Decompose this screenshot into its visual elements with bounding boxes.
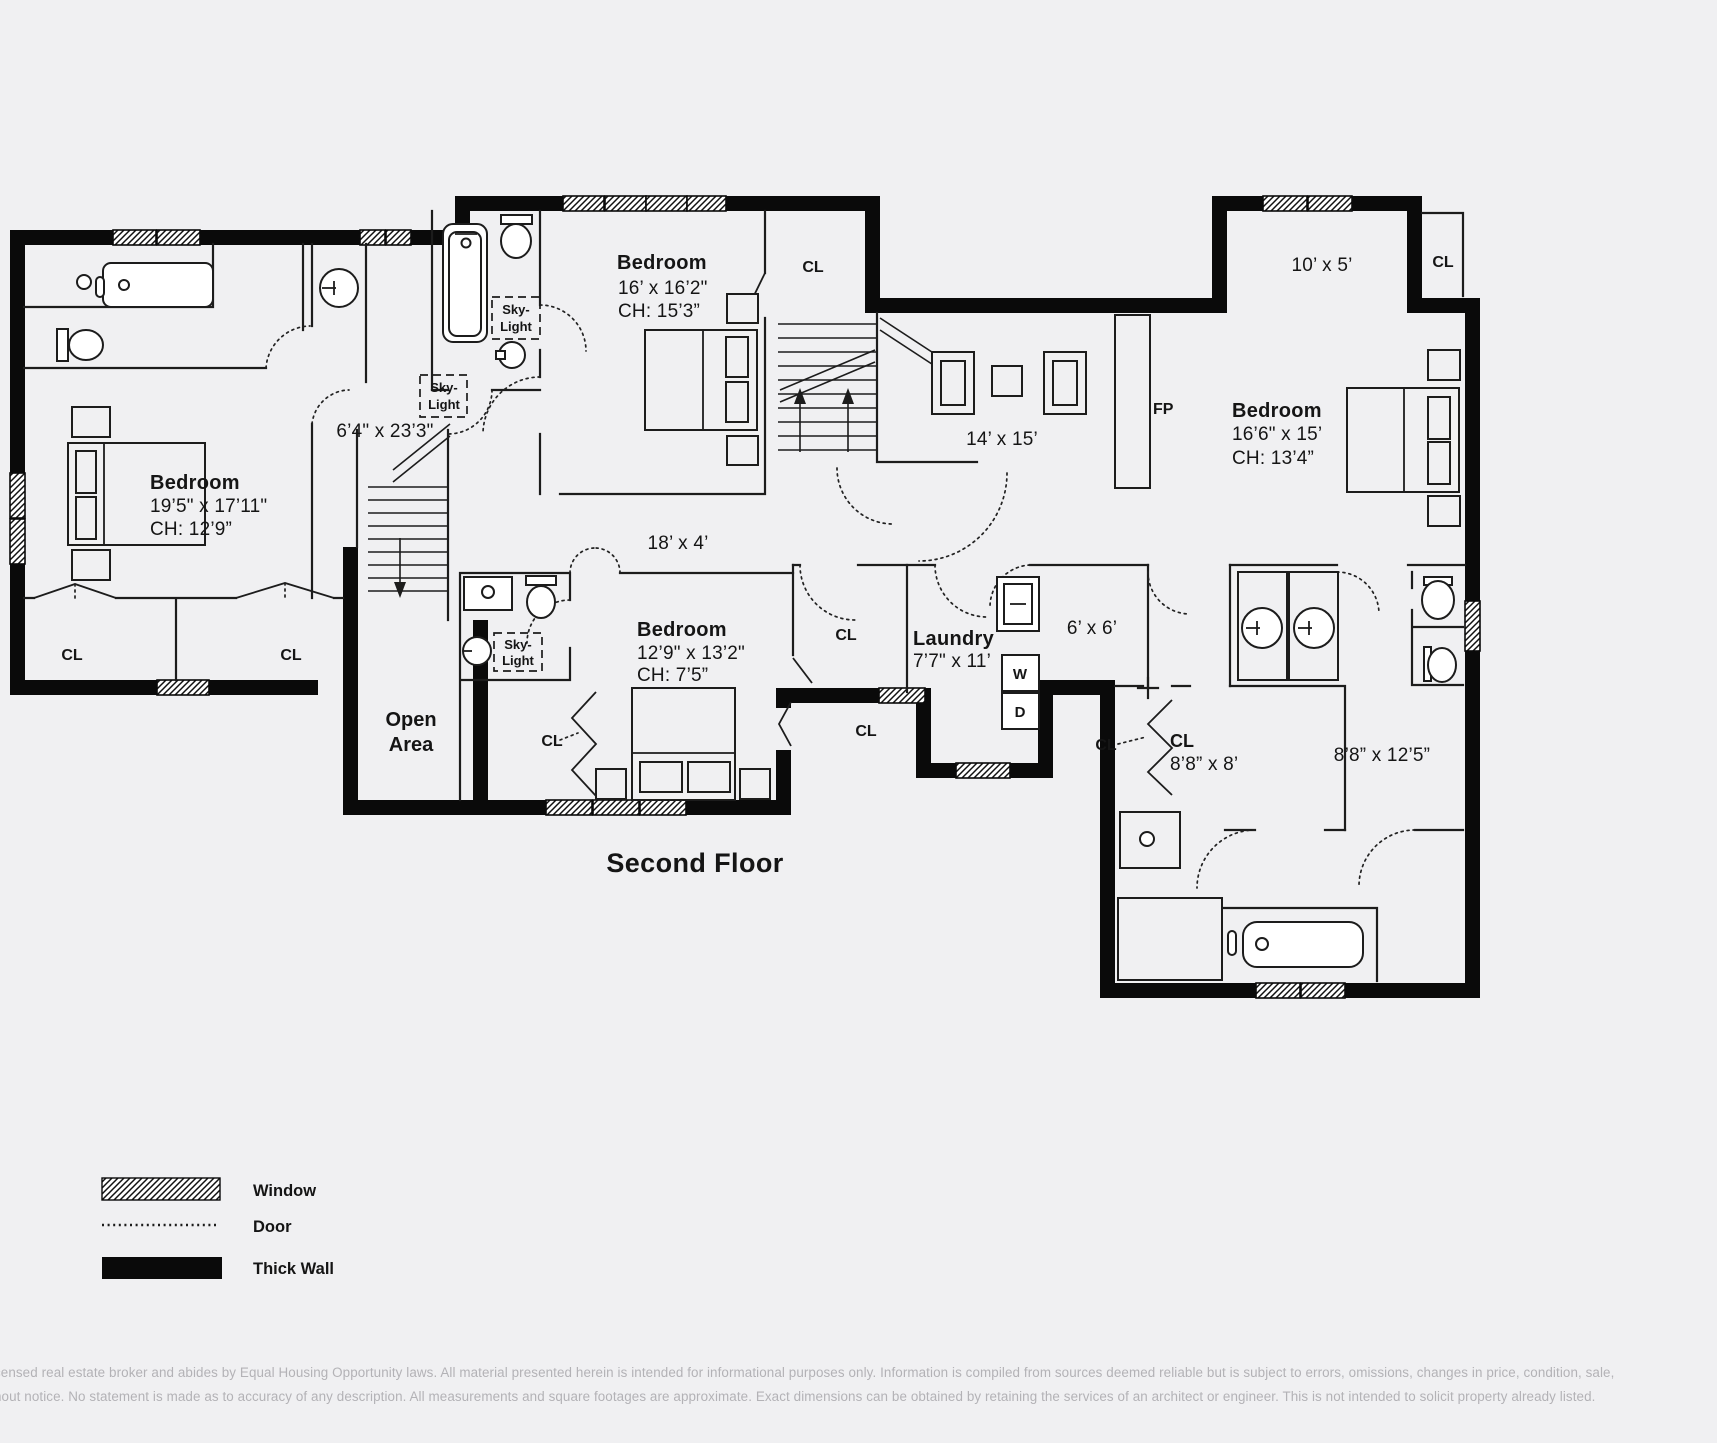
toilet-icon [526, 576, 556, 585]
nightstand-icon [1428, 350, 1460, 380]
dim-hall-horizontal: 18’ x 4’ [647, 533, 708, 554]
bed-middle [596, 688, 770, 800]
room-label-bedroom-left: Bedroom [150, 472, 240, 494]
legend: Window Door Thick Wall [102, 1178, 334, 1279]
pillow-icon [1428, 442, 1450, 484]
pillow-icon [640, 762, 682, 792]
disclaimer-line-2: hout notice. No statement is made as to … [0, 1389, 1595, 1404]
legend-window-label: Window [253, 1182, 316, 1200]
bottomright-fixtures [1118, 812, 1363, 980]
counter-icon [1118, 898, 1222, 980]
disclaimer: censed real estate broker and abides by … [0, 1365, 1614, 1404]
pillow-icon [76, 451, 96, 493]
closet-label: CL [280, 647, 302, 664]
pillow-icon [1428, 397, 1450, 439]
angled-door [779, 702, 791, 746]
dim-sitting: 14’ x 15’ [966, 429, 1038, 450]
closet-label: CL [1095, 737, 1117, 754]
room-label-bedroom-top: Bedroom [617, 252, 707, 274]
bathroom-topmiddle [443, 215, 532, 368]
room-ch: CH: 12’9” [150, 519, 232, 540]
nightstand-icon [727, 294, 758, 323]
faucet-icon [96, 277, 104, 297]
legend-thickwall-swatch [102, 1257, 222, 1279]
closet-big-name: CL [1170, 731, 1194, 751]
sitting-furniture [932, 352, 1086, 414]
room-dims: 12’9" x 13’2" [637, 643, 745, 664]
bifold-door [1148, 700, 1172, 795]
nightstand-icon [1428, 496, 1460, 526]
vanity-nook [320, 269, 358, 307]
open-area-label: Open [385, 709, 436, 731]
skylight-bath-middle: Sky- Light [494, 633, 542, 671]
dim-hall-vertical: 6’4" x 23’3" [336, 421, 433, 442]
fireplace-label: FP [1153, 401, 1174, 418]
skylight-hall: Sky- Light [420, 375, 467, 417]
double-vanity [1238, 572, 1338, 680]
dim-small-room: 6’ x 6’ [1067, 618, 1117, 639]
floor-plan-svg: Sky- Light Sky- Light Sky- Light Bedroom… [0, 0, 1717, 1443]
pillow-icon [726, 337, 748, 377]
faucet-icon [1228, 931, 1236, 955]
room-dims: 16’6" x 15’ [1232, 424, 1322, 445]
room-ch: CH: 15’3” [618, 301, 700, 322]
pillow-icon [76, 497, 96, 539]
room-dims: 16’ x 16’2" [618, 278, 708, 299]
bifold-door [572, 692, 596, 796]
skylight-label: Sky- [430, 380, 457, 395]
stairs-up-arrow [794, 388, 854, 452]
nightstand-icon [72, 550, 110, 580]
room-label-bedroom-middle: Bedroom [637, 619, 727, 641]
room-label-laundry: Laundry [913, 628, 995, 650]
dim-bath-right: 8’8” x 12’5” [1334, 745, 1430, 766]
dryer-label: D [1015, 704, 1026, 721]
stairs-small [368, 424, 450, 598]
room-ch: CH: 7’5” [637, 665, 708, 686]
fireplace-icon [1115, 315, 1150, 488]
closet-label: CL [61, 647, 83, 664]
nightstand-icon [596, 769, 626, 799]
sink-icon [1140, 832, 1154, 846]
disclaimer-line-1: censed real estate broker and abides by … [0, 1365, 1614, 1380]
nightstand-icon [72, 407, 110, 437]
room-label-bedroom-right: Bedroom [1232, 400, 1322, 422]
sink-icon [77, 275, 91, 289]
plan-title: Second Floor [606, 848, 783, 878]
legend-window-swatch [102, 1178, 220, 1200]
closet-label: CL [1432, 254, 1454, 271]
pillow-icon [726, 382, 748, 422]
skylight-label: Light [502, 653, 534, 668]
floor-plan-page: Sky- Light Sky- Light Sky- Light Bedroom… [0, 0, 1717, 1443]
toilet-icon [501, 215, 532, 224]
legend-thickwall-label: Thick Wall [253, 1260, 334, 1278]
skylight-label: Sky- [504, 637, 531, 652]
room-dims: 19’5" x 17’11" [150, 496, 267, 517]
pillow-icon [688, 762, 730, 792]
dim-balcony: 10’ x 5’ [1291, 255, 1352, 276]
closet-label: CL [835, 627, 857, 644]
closet-big-dims: 8’8” x 8’ [1170, 754, 1238, 775]
skylight-label: Sky- [502, 302, 529, 317]
closet-label: CL [802, 259, 824, 276]
stairs-main [778, 318, 938, 452]
nightstand-icon [740, 769, 770, 799]
skylight-bath-top: Sky- Light [492, 297, 540, 339]
room-ch: CH: 13’4” [1232, 448, 1314, 469]
closet-label: CL [855, 723, 877, 740]
toilet-icon [57, 329, 68, 361]
toilet-nook [1422, 577, 1456, 682]
skylight-label: Light [500, 319, 532, 334]
open-area-label: Area [389, 734, 434, 756]
stairs-down-arrow [394, 538, 406, 598]
bed-right [1347, 350, 1460, 526]
skylight-label: Light [428, 397, 460, 412]
bathroom-topleft [57, 263, 213, 361]
closet-label: CL [541, 733, 563, 750]
table-icon [992, 366, 1022, 396]
nightstand-icon [727, 436, 758, 465]
room-dims: 7’7" x 11’ [913, 651, 991, 672]
washer-label: W [1013, 666, 1028, 683]
legend-door-label: Door [253, 1218, 292, 1236]
